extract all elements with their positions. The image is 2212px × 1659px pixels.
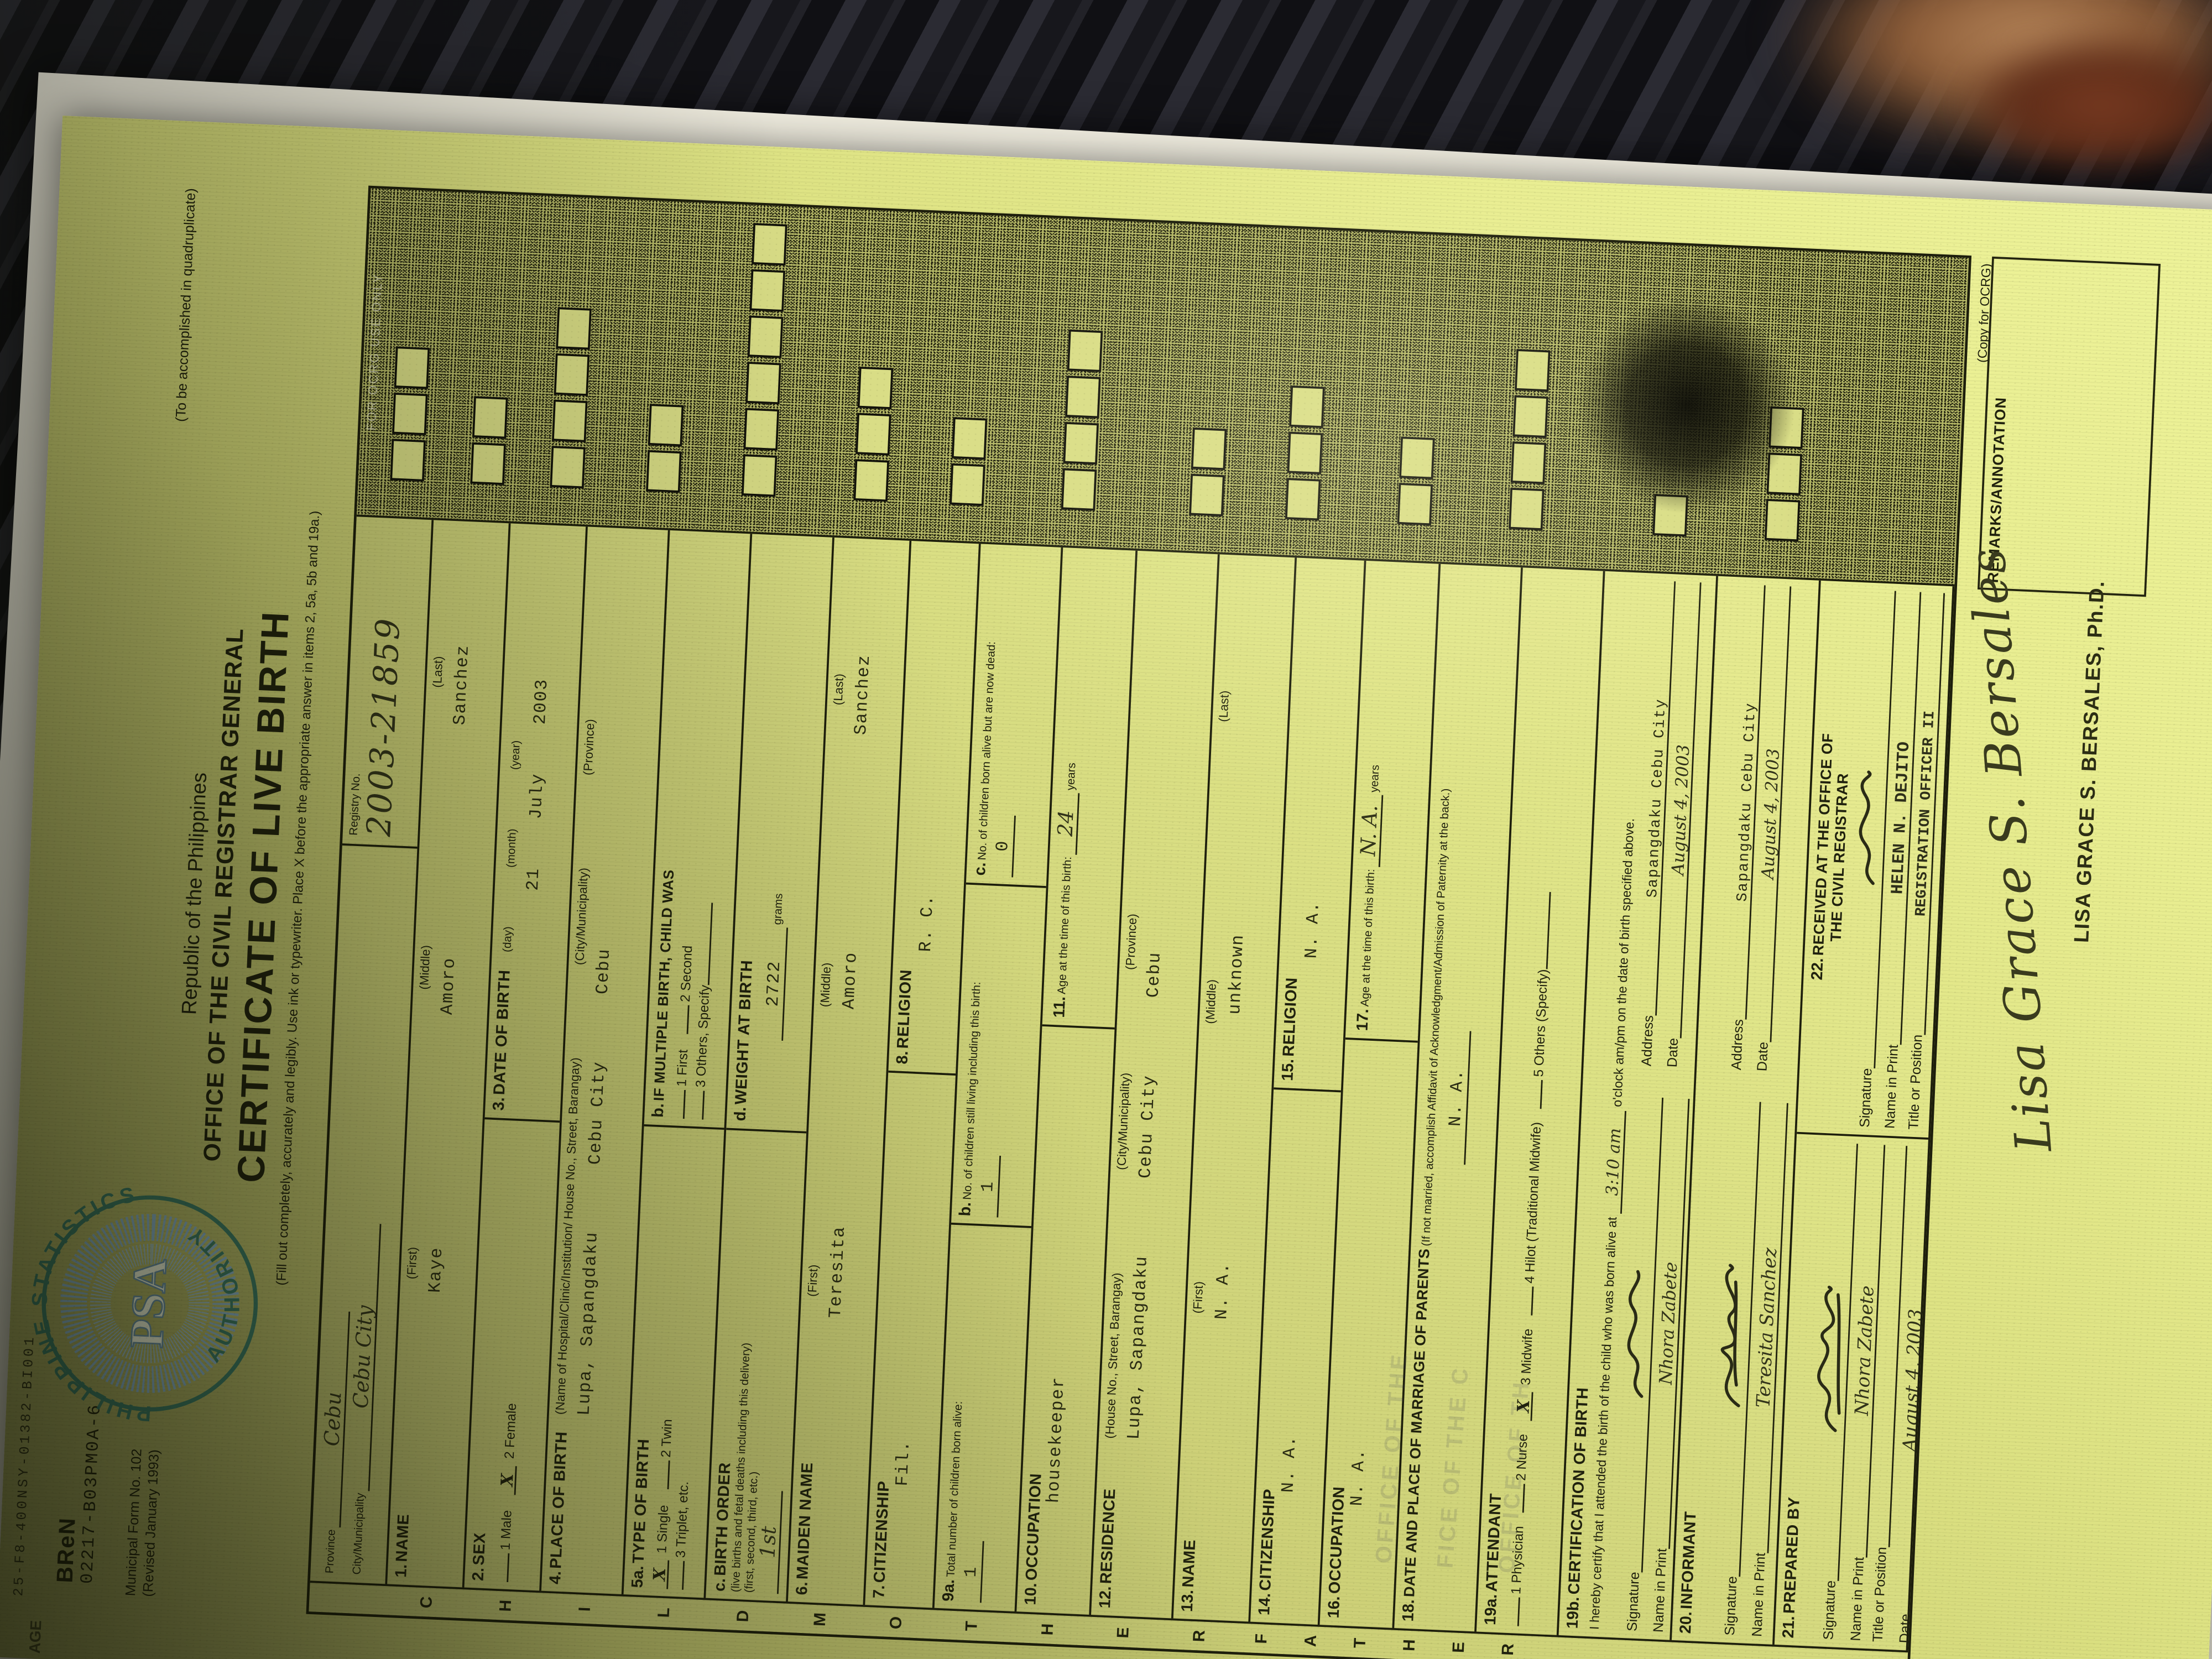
row-number: b. [649,1103,667,1118]
row-number: 3. [489,1097,508,1110]
section-spacer [309,1583,387,1615]
ocrg-coding-box [746,362,782,404]
mother-age-unit: years [1064,763,1078,791]
name-in-print-label: Name in Print [1848,1557,1867,1641]
row-number: 21. [1779,1615,1798,1638]
pob-prov-value: Cebu [593,948,615,995]
row-label: ATTENDANT [1482,1493,1504,1592]
ocrg-coding-box [750,269,786,312]
pob-prov-label: (Province) [581,719,598,776]
informant-signature [1713,1261,1750,1416]
row-label: CITIZENSHIP [870,1480,893,1583]
row-label: WEIGHT AT BIRTH [732,959,756,1105]
ocrg-coding-box [1287,431,1323,474]
sex-x-mark: X [499,1465,517,1495]
ocrg-coding-box [858,367,894,409]
middle-label: (Middle) [418,945,434,990]
row-label: DATE OF BIRTH [490,969,513,1095]
row-number: c. [710,1578,729,1592]
ocrg-box-row [1061,329,1103,510]
form-table: CHILD MOTHER FATHER Province Cebu City/M… [306,186,1971,1659]
ocrg-box-row [742,223,787,497]
row-number: 10. [1021,1583,1040,1605]
ocrg-coding-box [470,442,506,485]
ocrg-coding-box [394,346,430,389]
children-living-cell: b. No. of children still living includin… [951,884,1046,1228]
father-citizenship-value: N. A. [1279,1098,1315,1493]
row-label: PLACE OF BIRTH [546,1431,570,1569]
residence-city-label: (City/Municipality) [1115,1072,1134,1170]
accomplish-note: (To be accomplished in quadruplicate) [173,188,199,422]
child-name-label-cell: 1. NAME [387,1415,469,1588]
ocrg-coding-box [1768,406,1804,449]
ocrg-coding-box [1515,349,1551,392]
ocrg-box-row [1189,427,1227,517]
residence-value: Lupa, Sapangdaku [1124,1255,1152,1441]
option-single: 1 Single [654,1505,671,1554]
row-number: 13. [1178,1589,1197,1612]
national-statistician-name: LISA GRACE S. BERSALES, Ph.D. [2070,580,2109,943]
ocrg-coding-box [1511,441,1547,484]
maiden-name-label-cell: 6. MAIDEN NAME [788,1432,870,1605]
ocrg-coding-box [1065,375,1101,418]
single-x-mark: X [651,1559,669,1589]
date-label: Date [1664,1037,1681,1067]
row-number: 11. [1050,996,1068,1018]
mother-age-label: Age at the time of this birth: [1055,856,1074,994]
option-hilot: 4 Hilot (Traditional Midwife) [1521,1121,1544,1284]
signature-label: Signature [1721,1576,1740,1636]
ocrg-coding-box [855,413,891,455]
mother-religion-value: R. C. [916,549,953,952]
attendant-signature [1623,1267,1652,1401]
row-number: 7. [869,1585,888,1599]
row-label: SEX [469,1532,489,1566]
father-last-name [1240,686,1259,687]
children-total-label: Total number of children born alive: [944,1401,964,1577]
child-middle-name: Amoro [438,957,460,1015]
row-number: 19b. [1563,1597,1583,1629]
city-label: City/Municipality [350,1493,367,1575]
ocrg-coding-box [1067,329,1103,372]
option-others: 3 Others, Specify [692,984,712,1088]
prepared-by-cell: 21. PREPARED BY Signature Name in Print … [1775,1134,1928,1650]
ocrg-coding-box [1189,473,1225,516]
father-first-name: N. A. [1212,1261,1234,1320]
title-label: Title or Position [1906,1034,1926,1130]
ocrg-coding-box [550,446,586,488]
middle-label: (Middle) [818,962,834,1008]
mother-middle-name: Amoro [839,951,862,1010]
name-in-print-label: Name in Print [1749,1552,1768,1637]
row-number: b. [956,1202,974,1217]
ocrg-coding-box [648,404,684,446]
birth-time-value: 3:10 am [1603,1110,1626,1214]
dob-year: 2003 [531,678,552,725]
registrar-signature [1853,766,1884,891]
weight-unit: grams [771,893,785,925]
row-label: RELIGION [894,969,915,1048]
row-number: 18. [1399,1599,1417,1621]
ocrg-coding-box [390,439,426,481]
certification-text2: o'clock [1610,1068,1626,1107]
row-label: TYPE OF BIRTH [629,1438,652,1564]
residence-sublabel: (House No., Street, Barangay) [1103,1272,1124,1439]
row-label: RELIGION [1279,977,1301,1057]
date-label: Date [1897,1614,1914,1644]
ocrg-coding-box [1063,422,1099,465]
child-last-name: Sanchez [451,644,474,726]
row-label: PREPARED BY [1780,1496,1803,1614]
ocrg-box-row [1397,436,1434,525]
signature-label: Signature [1624,1572,1642,1632]
ocrg-coding-box [1513,395,1549,437]
month-label: (month) [504,828,518,868]
ocrg-coding-box [556,307,592,349]
pob-label-cell: 4. PLACE OF BIRTH [541,1421,629,1594]
ocrg-box-row [1652,494,1688,536]
pob-city-label: (City/Municipality) [573,868,592,966]
row-number: d. [731,1107,749,1121]
year-label: (year) [508,740,523,770]
ocrg-coding-column: FOR OCRG USE ONLY [357,189,1969,587]
name-in-print-label: Name in Print [1882,1044,1902,1129]
father-age-label: Age at the time of this birth: [1358,869,1377,1007]
day-label: (day) [500,926,514,953]
residence-prov-label: (Province) [1123,914,1140,971]
birth-order-value: 1st [755,1490,783,1594]
ocrg-box-row [470,396,508,485]
father-name-label-cell: 13. NAME [1173,1449,1256,1622]
row-number: 20. [1676,1611,1695,1634]
father-middle-name: unknown [1225,933,1249,1015]
ocrg-coding-box [1766,452,1802,495]
bren-block: BReN 02217-B03PM0A-6 [52,1402,105,1584]
ocrg-coding-box [554,353,590,396]
middle-label: (Middle) [1203,979,1220,1024]
ocrg-coding-box [950,463,985,505]
dob-month: July [526,773,548,820]
registry-cell: Registry No. 2003-21859 [342,517,432,849]
row-label: IF MULTIPLE BIRTH, CHILD WAS [651,869,677,1102]
first-label: (First) [805,1264,821,1297]
date-label: Date [1754,1041,1771,1071]
ocrg-box-row [390,346,430,481]
first-label: (First) [1191,1281,1207,1313]
row-label: RESIDENCE [1097,1488,1119,1584]
option-second: 2 Second [677,945,695,1002]
row-number: 9a. [939,1579,958,1601]
registry-value: 2003-21859 [360,525,411,837]
last-label: (Last) [1217,690,1233,722]
row-number: 8. [893,1051,911,1065]
ocrg-coding-box [472,396,508,439]
certificate-paper: 25-F8-400NSY-01382-BI001 BReN 02217-B03P… [0,116,2212,1659]
name-in-print-label: Name in Print [1651,1548,1670,1632]
mother-age-value: 24 [1054,792,1080,854]
row-number: 12. [1095,1585,1114,1608]
first-label: (First) [405,1246,421,1279]
father-age-value: N. A. [1357,794,1383,867]
row-label: INFORMANT [1677,1511,1699,1609]
ocrg-coding-box [552,399,588,442]
residence-label-cell: 12. RESIDENCE [1091,1446,1178,1619]
ocrg-coding-box [748,315,784,358]
row-label: NAME [392,1514,412,1562]
option-midwife: 3 Midwife [1517,1328,1535,1385]
row-label: MAIDEN NAME [793,1462,816,1580]
row-number: 5a. [628,1566,647,1588]
row-number: 4. [546,1571,565,1584]
children-dead-cell: c. No. of children born alive but are no… [966,544,1061,888]
ocrg-box-row [950,417,987,506]
national-statistician-signature: Lisa Grace S. Bersales [1958,545,2063,1154]
ocrg-coding-box [1191,427,1227,470]
ocrg-coding-box [1509,488,1545,530]
children-dead-label: No. of children born alive but are now d… [975,641,998,860]
mother-last-name: Sanchez [852,654,875,735]
residence-city-value: Cebu City [1136,1074,1160,1179]
ocrg-coding-box [744,408,780,450]
address-label: Address [1639,1015,1657,1066]
row-label: OCCUPATION [1022,1473,1045,1580]
option-female: 2 Female [501,1403,519,1459]
province-label: Province [323,1529,338,1574]
page-corner-fragment: AGE [27,1620,45,1654]
pob-city-value: Cebu City [586,1061,609,1165]
ocrg-coding-box [1765,499,1801,541]
address-label: Address [1729,1019,1747,1070]
children-total-value: 1 [962,1540,984,1603]
province-value: Cebu [317,1311,350,1527]
ocrg-coding-box [1289,385,1325,428]
row-number: 22. [1808,958,1827,980]
ocrg-coding-box [646,450,682,492]
photo-scene: Page 1 of 1 , 1 Copy 25-F8-400NSY-01382-… [0,0,2212,1659]
option-others-specify: 5 Others (Specify) [1531,969,1551,1077]
option-male: 1 Male [497,1510,514,1551]
pob-value: Lupa, Sapangdaku [575,1231,602,1416]
ocrg-box-row [646,404,684,493]
ocrg-coding-box [1397,483,1433,525]
option-first: 1 First [674,1049,691,1087]
children-living-label: No. of children still living including t… [961,982,983,1200]
ocrg-coding-box [1061,468,1097,510]
row-label: NAME [1179,1539,1199,1588]
ocrg-coding-box [752,223,788,265]
child-first-name: Kaye [426,1246,447,1293]
row-number: 15. [1278,1058,1297,1081]
father-occupation-value: N. A. [1348,1047,1387,1506]
ocrg-coding-box [392,393,428,435]
prepared-by-signature [1812,1284,1848,1439]
ocrg-coding-box [1652,494,1688,536]
row-number: c. [971,862,989,876]
mother-first-name: Teresita [826,1225,850,1318]
weight-value: 2722 [763,927,788,1041]
option-twin: 2 Twin [658,1419,675,1458]
row-number: 2. [468,1567,487,1581]
row-label: OCCUPATION [1325,1486,1348,1594]
father-age-unit: years [1368,764,1381,792]
ocrg-coding-box [742,454,778,497]
last-label: (Last) [430,656,446,688]
children-dead-value: 0 [993,815,1016,877]
ocrg-box-row [854,367,894,502]
children-total-cell: 9a. Total number of children born alive:… [935,1225,1031,1611]
dob-day: 21 [524,867,544,891]
signature-label: Signature [1856,1068,1875,1128]
title-label: Title or Position [1870,1547,1890,1642]
form-main-column: Province Cebu City/Municipality Cebu Cit… [310,517,1955,1651]
option-physician: 1 Physician [1508,1526,1526,1595]
ocrg-box-row [1509,349,1551,530]
children-living-value: 1 [978,1155,1001,1218]
ocrg-coding-box [1285,478,1321,520]
option-triplet: 3 Triplet, etc. [672,1481,691,1558]
ocrg-coding-box [952,417,988,460]
ocrg-coding-box [1399,436,1435,479]
ocrg-box-row [550,307,592,488]
mother-occupation-value: housekeeper [1044,1035,1084,1504]
father-religion-value: N. A. [1302,566,1338,959]
received-cell: 22. RECEIVED AT THE OFFICE OF THE CIVIL … [1797,580,1953,1139]
ocrg-column-label: FOR OCRG USE ONLY [361,189,389,515]
last-label: (Last) [831,674,847,706]
row-number: 19a. [1481,1594,1500,1625]
row-number: 16. [1324,1595,1343,1618]
option-nurse: 2 Nurse [1513,1433,1531,1481]
midwife-x-mark: X [1516,1391,1533,1421]
row-number: 14. [1255,1593,1274,1615]
ocrg-box-row [1765,406,1804,541]
row-label: CITIZENSHIP [1256,1489,1279,1592]
ocrg-box-row [1285,385,1325,520]
ocrg-coding-box [854,459,890,502]
mother-citizenship-value: Fil. [893,1081,930,1486]
residence-prov-value: Cebu [1144,951,1165,998]
signature-label: Signature [1820,1580,1839,1640]
row-number: 17. [1353,1008,1371,1031]
copy-for-ocrg-note: (Copy for OCRG) [1975,263,1995,363]
row-number: 6. [792,1582,811,1595]
row-number: 1. [392,1564,410,1578]
marriage-value: N. A. [1446,1030,1471,1165]
